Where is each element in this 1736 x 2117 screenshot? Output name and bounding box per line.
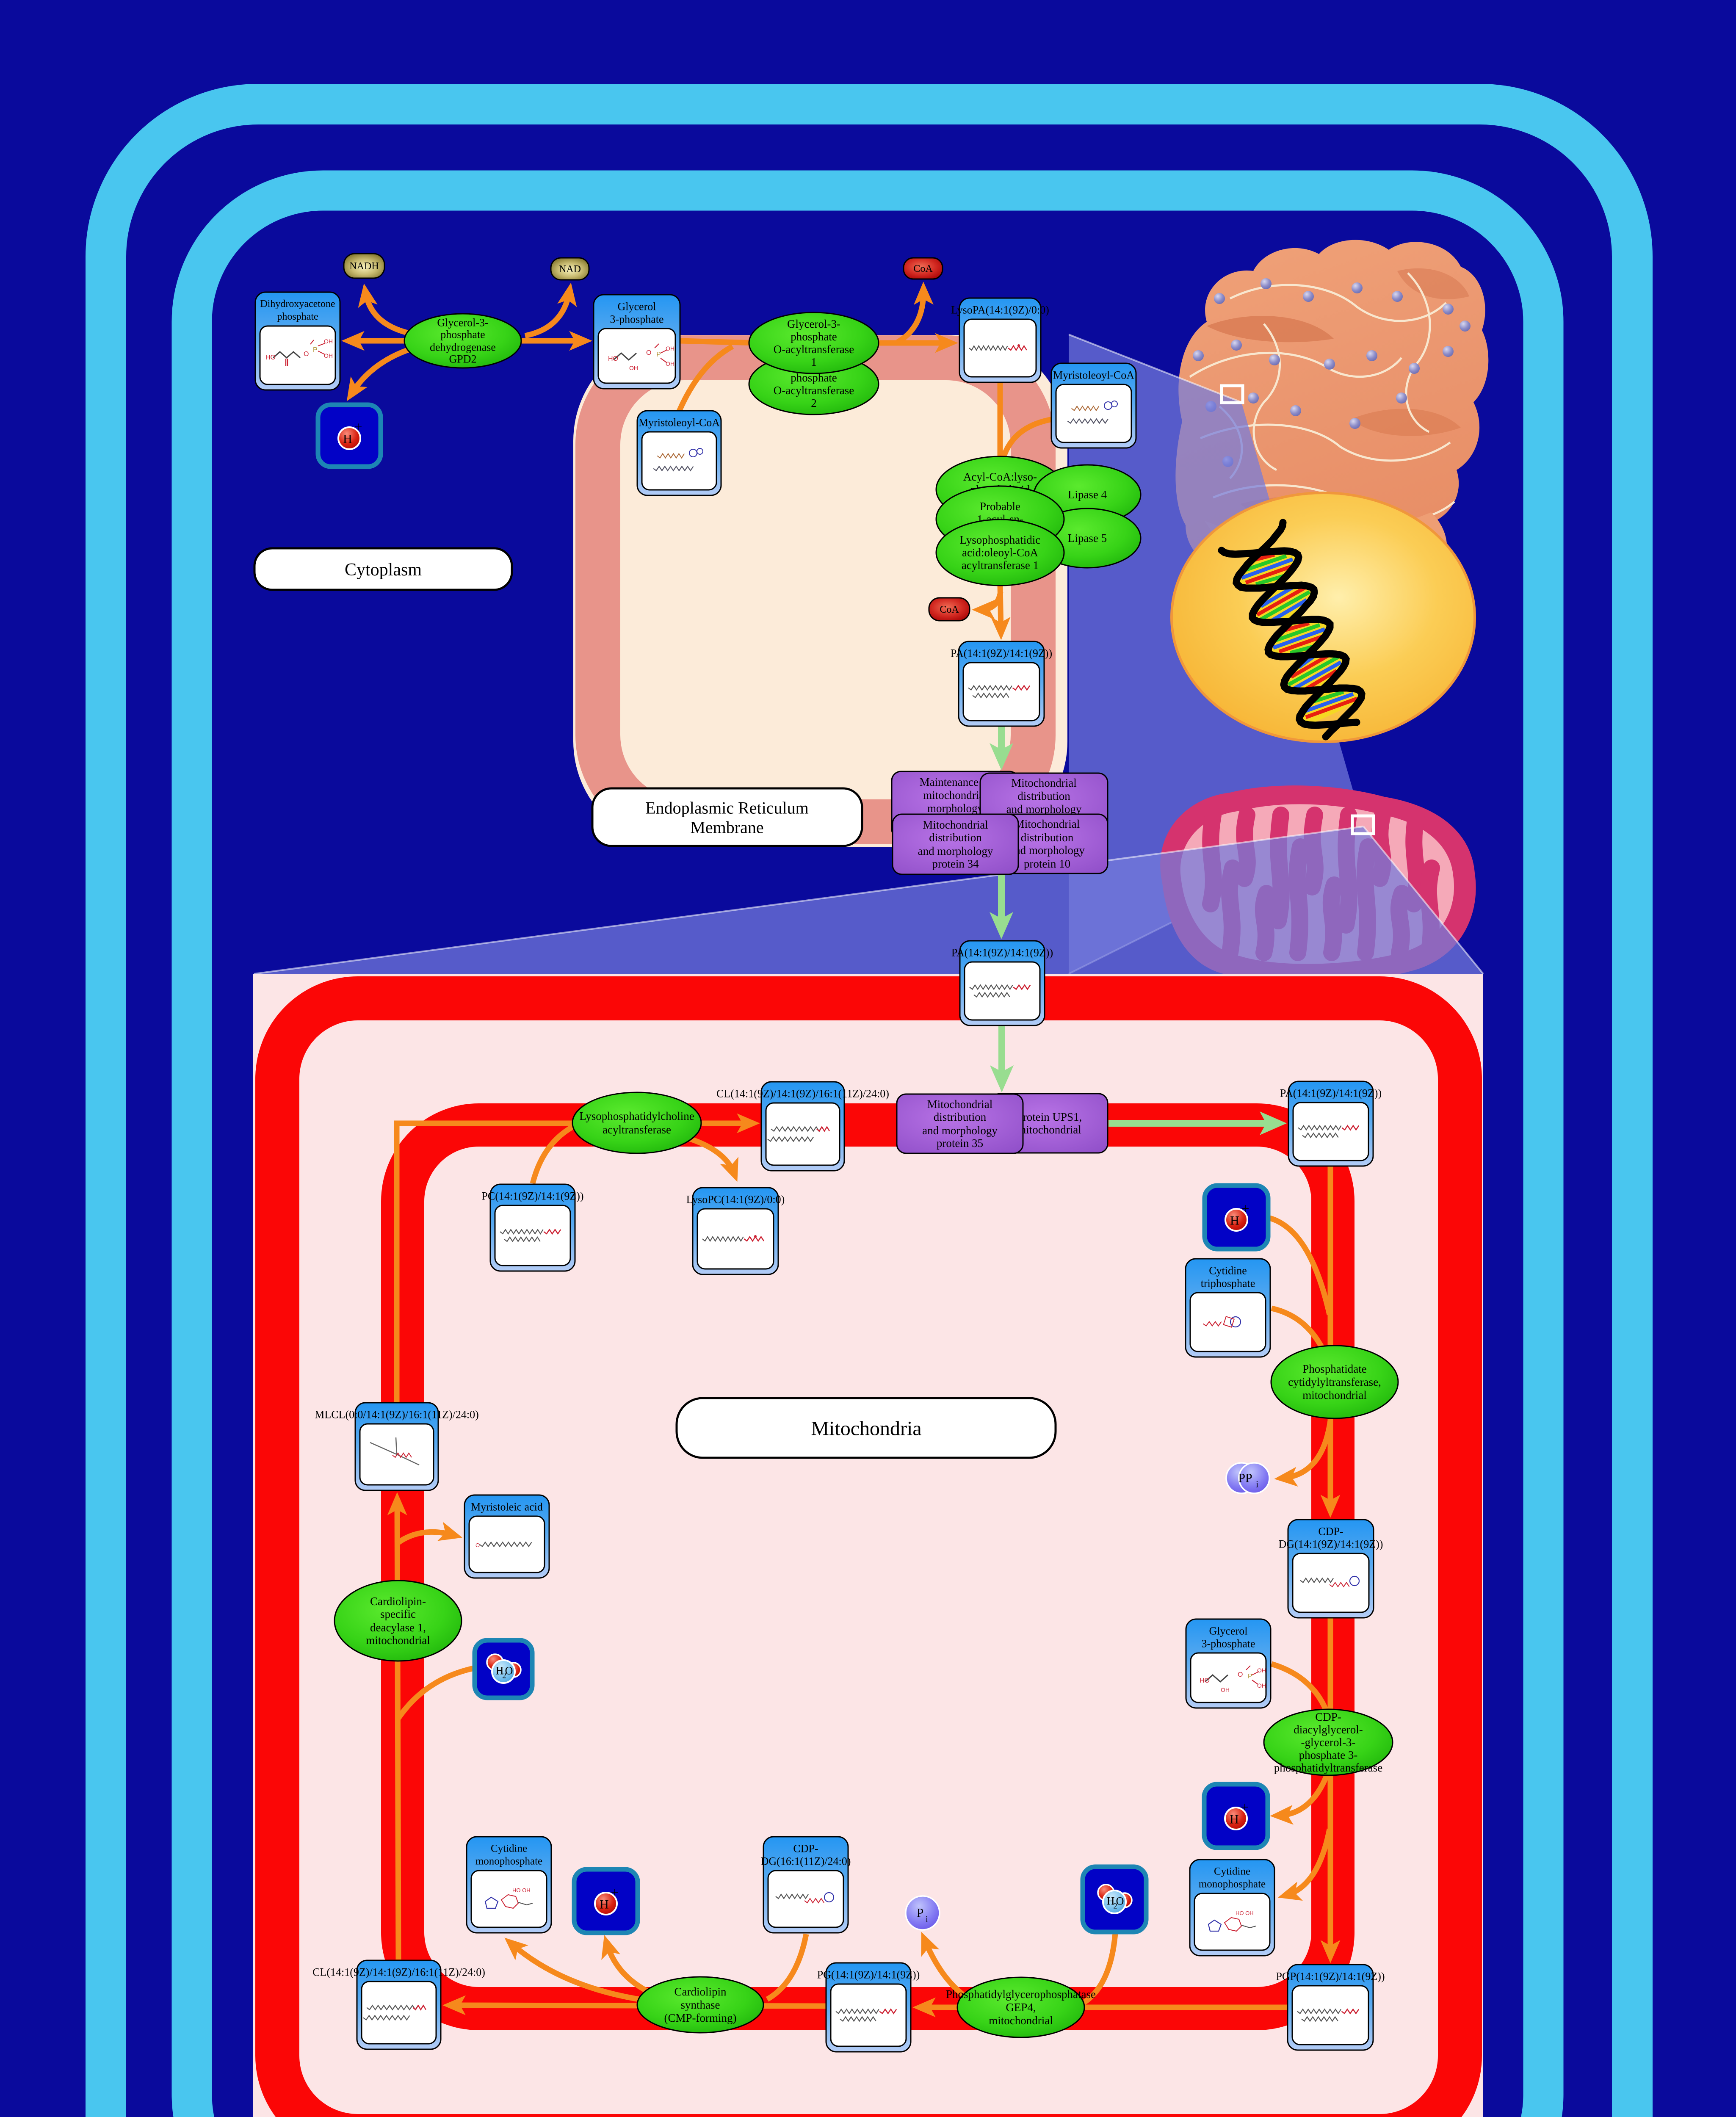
- svg-text:phosphatidyltransferase: phosphatidyltransferase: [1274, 1761, 1382, 1774]
- svg-text:P: P: [917, 1906, 924, 1920]
- svg-text:CoA: CoA: [940, 604, 959, 615]
- svg-text:Cardiolipin: Cardiolipin: [674, 1985, 727, 1998]
- svg-text:Lysophosphatidylcholine: Lysophosphatidylcholine: [579, 1110, 694, 1122]
- svg-text:Glycerol: Glycerol: [618, 301, 656, 313]
- svg-text:mitochondrial: mitochondrial: [1302, 1389, 1366, 1401]
- svg-text:acyltransferase: acyltransferase: [603, 1123, 671, 1136]
- svg-text:+: +: [354, 420, 362, 435]
- svg-text:Lipase 4: Lipase 4: [1068, 488, 1107, 501]
- svg-text:O: O: [1116, 1895, 1124, 1907]
- svg-text:OH: OH: [629, 365, 638, 371]
- svg-text:CL(14:1(9Z)/14:1(9Z)/16:1(11Z): CL(14:1(9Z)/14:1(9Z)/16:1(11Z)/24:0): [716, 1088, 889, 1100]
- svg-text:specific: specific: [380, 1608, 416, 1620]
- svg-text:CDP-: CDP-: [1315, 1711, 1341, 1723]
- svg-text:LysoPC(14:1(9Z)/0:0): LysoPC(14:1(9Z)/0:0): [686, 1194, 785, 1206]
- svg-text:Myristoleoyl-CoA: Myristoleoyl-CoA: [639, 417, 720, 429]
- svg-text:Dihydroxyacetone: Dihydroxyacetone: [260, 298, 335, 310]
- svg-text:CDP-: CDP-: [1318, 1526, 1343, 1538]
- svg-text:HO OH: HO OH: [512, 1887, 531, 1893]
- svg-text:triphosphate: triphosphate: [1201, 1277, 1255, 1290]
- svg-text:PA(14:1(9Z)/14:1(9Z)): PA(14:1(9Z)/14:1(9Z)): [951, 647, 1052, 660]
- svg-text:CDP-: CDP-: [793, 1843, 818, 1855]
- svg-text:distribution: distribution: [1017, 790, 1070, 802]
- svg-text:-glycerol-3-: -glycerol-3-: [1301, 1736, 1356, 1749]
- svg-text:phosphate: phosphate: [791, 330, 837, 343]
- svg-text:Phosphatidate: Phosphatidate: [1302, 1363, 1366, 1375]
- svg-text:CoA: CoA: [913, 263, 933, 274]
- svg-text:+: +: [1241, 1800, 1249, 1816]
- svg-text:P: P: [1248, 1673, 1252, 1680]
- svg-text:HO: HO: [265, 354, 276, 361]
- svg-text:NAD: NAD: [559, 264, 581, 275]
- svg-text:H: H: [600, 1898, 609, 1912]
- svg-text:LysoPA(14:1(9Z)/0:0): LysoPA(14:1(9Z)/0:0): [951, 304, 1049, 316]
- svg-text:phosphate 3-: phosphate 3-: [1299, 1749, 1358, 1761]
- svg-text:phosphate: phosphate: [277, 311, 318, 322]
- svg-text:P: P: [656, 351, 661, 358]
- svg-text:Mitochondria: Mitochondria: [811, 1418, 921, 1440]
- svg-text:Probable: Probable: [980, 500, 1020, 513]
- svg-text:2: 2: [811, 397, 817, 409]
- svg-text:and morphology: and morphology: [1009, 844, 1085, 857]
- svg-text:OH: OH: [666, 360, 674, 367]
- svg-text:Protein UPS1,: Protein UPS1,: [1017, 1111, 1082, 1123]
- svg-text:Cardiolipin-: Cardiolipin-: [370, 1595, 426, 1608]
- svg-text:Lysophosphatidic: Lysophosphatidic: [960, 533, 1041, 546]
- svg-text:Phosphatidylglycerophosphatase: Phosphatidylglycerophosphatase: [946, 1988, 1096, 2001]
- svg-text:OH: OH: [666, 345, 674, 352]
- svg-text:acid:oleoyl-CoA: acid:oleoyl-CoA: [962, 546, 1038, 559]
- svg-text:synthase: synthase: [681, 1998, 720, 2011]
- svg-text:and morphology: and morphology: [922, 1124, 998, 1137]
- svg-text:OH: OH: [1257, 1667, 1266, 1674]
- svg-text:O-acyltransferase: O-acyltransferase: [774, 384, 854, 397]
- svg-text:Cytidine: Cytidine: [491, 1843, 527, 1854]
- svg-text:Acyl-CoA:lyso-: Acyl-CoA:lyso-: [963, 470, 1037, 483]
- svg-text:monophosphate: monophosphate: [475, 1856, 542, 1867]
- svg-text:Mitochondrial: Mitochondrial: [1011, 777, 1076, 789]
- svg-text:CL(14:1(9Z)/14:1(9Z)/16:1(11Z): CL(14:1(9Z)/14:1(9Z)/16:1(11Z)/24:0): [312, 1966, 485, 1979]
- svg-text:(CMP-forming): (CMP-forming): [664, 2012, 737, 2024]
- svg-text:O-acyltransferase: O-acyltransferase: [774, 343, 854, 356]
- svg-text:HO: HO: [1200, 1677, 1210, 1684]
- svg-text:Glycerol: Glycerol: [1209, 1625, 1248, 1637]
- svg-text:GEP4,: GEP4,: [1006, 2001, 1036, 2014]
- svg-text:mitochondrial: mitochondrial: [923, 789, 987, 801]
- svg-text:PGP(14:1(9Z)/14:1(9Z)): PGP(14:1(9Z)/14:1(9Z)): [1276, 1971, 1385, 1983]
- svg-text:Mitochondrial: Mitochondrial: [923, 818, 988, 831]
- svg-text:1: 1: [811, 356, 817, 368]
- svg-text:mitochondrial: mitochondrial: [989, 2014, 1053, 2027]
- svg-text:diacylglycerol-: diacylglycerol-: [1294, 1723, 1363, 1736]
- svg-text:NADH: NADH: [349, 261, 379, 272]
- svg-text:O: O: [505, 1665, 513, 1677]
- svg-text:morphology: morphology: [927, 802, 983, 815]
- svg-text:DG(14:1(9Z)/14:1(9Z)): DG(14:1(9Z)/14:1(9Z)): [1279, 1538, 1383, 1550]
- svg-text:OH: OH: [324, 338, 333, 345]
- svg-text:HO OH: HO OH: [1236, 1910, 1254, 1916]
- svg-text:O: O: [304, 351, 309, 358]
- svg-text:H: H: [1230, 1214, 1239, 1228]
- svg-text:Myristoleic acid: Myristoleic acid: [471, 1501, 543, 1513]
- svg-text:H: H: [1230, 1813, 1239, 1827]
- svg-text:distribution: distribution: [1021, 831, 1074, 844]
- svg-text:3-phosphate: 3-phosphate: [1201, 1638, 1255, 1650]
- svg-text:mitochondrial: mitochondrial: [366, 1634, 430, 1647]
- svg-text:O: O: [646, 349, 651, 357]
- svg-text:MLCL(0:0/14:1(9Z)/16:1(11Z)/24: MLCL(0:0/14:1(9Z)/16:1(11Z)/24:0): [315, 1409, 479, 1421]
- svg-text:OH: OH: [1221, 1686, 1230, 1693]
- svg-text:Glycerol-3-: Glycerol-3-: [437, 317, 488, 329]
- svg-text:PC(14:1(9Z)/14:1(9Z)): PC(14:1(9Z)/14:1(9Z)): [481, 1190, 583, 1202]
- svg-text:+: +: [611, 1885, 619, 1901]
- svg-text:acyltransferase 1: acyltransferase 1: [962, 559, 1039, 572]
- svg-text:Lipase 5: Lipase 5: [1068, 532, 1107, 544]
- svg-text:distribution: distribution: [934, 1111, 987, 1123]
- svg-text:dehydrogenase: dehydrogenase: [430, 341, 496, 354]
- svg-text:HO: HO: [608, 355, 618, 362]
- svg-text:Mitochondrial: Mitochondrial: [1015, 818, 1080, 830]
- svg-text:distribution: distribution: [929, 831, 982, 844]
- svg-text:Glycerol-3-: Glycerol-3-: [787, 318, 840, 330]
- svg-text:Myristoleoyl-CoA: Myristoleoyl-CoA: [1053, 369, 1134, 381]
- svg-text:protein 10: protein 10: [1024, 857, 1070, 870]
- svg-text:mitochondrial: mitochondrial: [1017, 1123, 1081, 1136]
- svg-text:deacylase 1,: deacylase 1,: [370, 1621, 426, 1634]
- svg-text:3-phosphate: 3-phosphate: [610, 313, 663, 326]
- svg-text:OH: OH: [1257, 1682, 1266, 1689]
- svg-text:GPD2: GPD2: [449, 353, 476, 365]
- svg-text:i: i: [1256, 1479, 1258, 1490]
- svg-text:H: H: [343, 432, 352, 446]
- svg-text:phosphate: phosphate: [440, 329, 485, 341]
- svg-text:PP: PP: [1238, 1471, 1252, 1485]
- svg-text:Cytidine: Cytidine: [1209, 1265, 1247, 1277]
- svg-text:PA(14:1(9Z)/14:1(9Z)): PA(14:1(9Z)/14:1(9Z)): [1280, 1087, 1382, 1100]
- svg-text:and morphology: and morphology: [918, 845, 993, 857]
- svg-text:P: P: [313, 346, 318, 354]
- svg-text:OH: OH: [324, 352, 333, 359]
- svg-text:cytidylyltransferase,: cytidylyltransferase,: [1288, 1376, 1381, 1388]
- svg-text:O: O: [1238, 1671, 1243, 1678]
- svg-text:monophosphate: monophosphate: [1199, 1879, 1266, 1890]
- svg-text:i: i: [926, 1914, 928, 1924]
- svg-text:Cytoplasm: Cytoplasm: [345, 560, 422, 580]
- svg-text:Membrane: Membrane: [690, 818, 763, 837]
- svg-text:PA(14:1(9Z)/14:1(9Z)): PA(14:1(9Z)/14:1(9Z)): [951, 947, 1053, 959]
- svg-text:Mitochondrial: Mitochondrial: [927, 1098, 992, 1111]
- svg-text:Endoplasmic Reticulum: Endoplasmic Reticulum: [645, 799, 809, 818]
- svg-text:PG(14:1(9Z)/14:1(9Z)): PG(14:1(9Z)/14:1(9Z)): [817, 1969, 920, 1981]
- svg-text:protein 35: protein 35: [937, 1137, 983, 1150]
- svg-text:O: O: [475, 1542, 480, 1548]
- svg-text:DG(16:1(11Z)/24:0): DG(16:1(11Z)/24:0): [761, 1855, 851, 1868]
- svg-text:protein 34: protein 34: [932, 857, 979, 870]
- svg-text:Cytidine: Cytidine: [1214, 1866, 1250, 1877]
- svg-text:+: +: [1241, 1201, 1249, 1217]
